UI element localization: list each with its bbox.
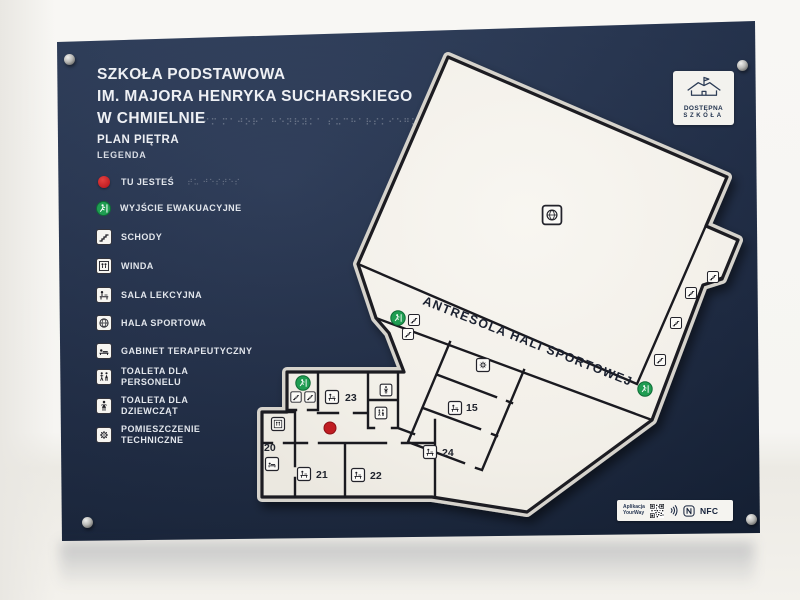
legend-item-toilet-staff: TOALETA DLA PERSONELU	[96, 366, 188, 388]
logo-line-1: DOSTĘPNA	[673, 105, 734, 112]
room-15-label: 15	[466, 402, 478, 414]
map-classroom-icon	[352, 469, 365, 482]
room-22-label: 22	[370, 470, 382, 482]
classroom-icon	[96, 287, 112, 303]
map-stairs-icon	[305, 392, 315, 402]
signal-waves-icon	[669, 504, 678, 517]
legend-item-elevator: WINDA	[96, 258, 154, 274]
toilet-girls-icon	[96, 398, 112, 414]
screw-top-left	[64, 54, 75, 65]
signboard: SZKOŁA PODSTAWOWA IM. MAJORA HENRYKA SUC…	[0, 0, 800, 600]
title-line-1: SZKOŁA PODSTAWOWA	[97, 64, 413, 86]
map-stairs-icon	[670, 317, 681, 328]
floor-plan-label: PLAN PIĘTRA	[97, 134, 179, 146]
emergency-exit-icon	[96, 201, 111, 216]
dostepna-szkola-logo: DOSTĘPNA SZKOŁA	[673, 71, 734, 125]
map-toilet-staff-icon	[375, 407, 387, 419]
toilet-staff-icon	[96, 369, 112, 385]
map-classroom-icon	[298, 468, 311, 481]
map-sports-hall-icon	[543, 206, 562, 225]
legend-item-sports-hall: HALA SPORTOWA	[96, 315, 206, 331]
you-are-here-icon	[98, 176, 110, 188]
map-classroom-icon	[326, 391, 339, 404]
room-20-label: 20	[264, 442, 276, 454]
elevator-icon	[96, 258, 112, 274]
map-stairs-icon	[685, 287, 696, 298]
map-exit-lobby-icon	[296, 376, 310, 390]
legend-item-toilet-girls: TOALETA DLA DZIEWCZĄT	[96, 395, 188, 417]
nfc-n-mark-icon	[683, 505, 695, 517]
school-building-icon	[684, 75, 724, 100]
map-exit-west-icon	[391, 311, 405, 325]
screw-bottom-left	[82, 517, 93, 528]
screw-bottom-right	[746, 514, 757, 525]
sports-hall-icon	[96, 315, 112, 331]
map-stairs-icon	[408, 314, 419, 325]
legend-item-therapy-room: GABINET TERAPEUTYCZNY	[96, 343, 252, 359]
map-classroom-icon	[424, 446, 437, 459]
legend-item-classroom: SALA LEKCYJNA	[96, 287, 202, 303]
room-24-label: 24	[442, 447, 454, 459]
therapy-room-icon	[96, 343, 112, 359]
legend-item-stairs: SCHODY	[96, 229, 162, 245]
map-stairs-icon	[291, 392, 301, 402]
map-therapy-room-icon	[266, 458, 279, 471]
nfc-qr-strip: Aplikacja YourWay	[617, 500, 733, 521]
you-are-here-marker	[324, 422, 336, 434]
map-technical-room-icon	[477, 359, 490, 372]
board-reflection	[60, 542, 754, 588]
technical-room-icon	[96, 427, 112, 443]
nfc-text: NFC	[700, 506, 718, 516]
map-classroom-icon	[449, 402, 462, 415]
legend-heading: LEGENDA	[97, 150, 147, 160]
wall-shading	[0, 0, 55, 600]
title-line-3: W CHMIELNIE	[97, 108, 413, 130]
screw-top-right	[737, 60, 748, 71]
map-stairs-icon	[707, 271, 718, 282]
map-elevator-icon	[272, 418, 285, 431]
board-title: SZKOŁA PODSTAWOWA IM. MAJORA HENRYKA SUC…	[97, 64, 413, 130]
room-23-label: 23	[345, 392, 357, 404]
logo-line-2: SZKOŁA	[673, 112, 734, 120]
map-toilet-girls-icon	[380, 384, 392, 396]
map-stairs-icon	[654, 354, 665, 365]
room-21-label: 21	[316, 469, 328, 481]
title-line-2: IM. MAJORA HENRYKA SUCHARSKIEGO	[97, 86, 413, 108]
stairs-icon	[96, 229, 112, 245]
legend-item-you-are-here: TU JESTEŚ ⠞⠥ ⠚⠑⠎⠞⠑⠎	[96, 174, 241, 190]
app-label: Aplikacja YourWay	[623, 505, 645, 516]
qr-code	[650, 504, 664, 518]
legend-item-technical-room: POMIESZCZENIE TECHNICZNE	[96, 424, 200, 446]
map-stairs-icon	[402, 328, 413, 339]
legend-item-emergency-exit: WYJŚCIE EWAKUACYJNE	[96, 201, 242, 216]
map-exit-east-icon	[638, 382, 652, 396]
